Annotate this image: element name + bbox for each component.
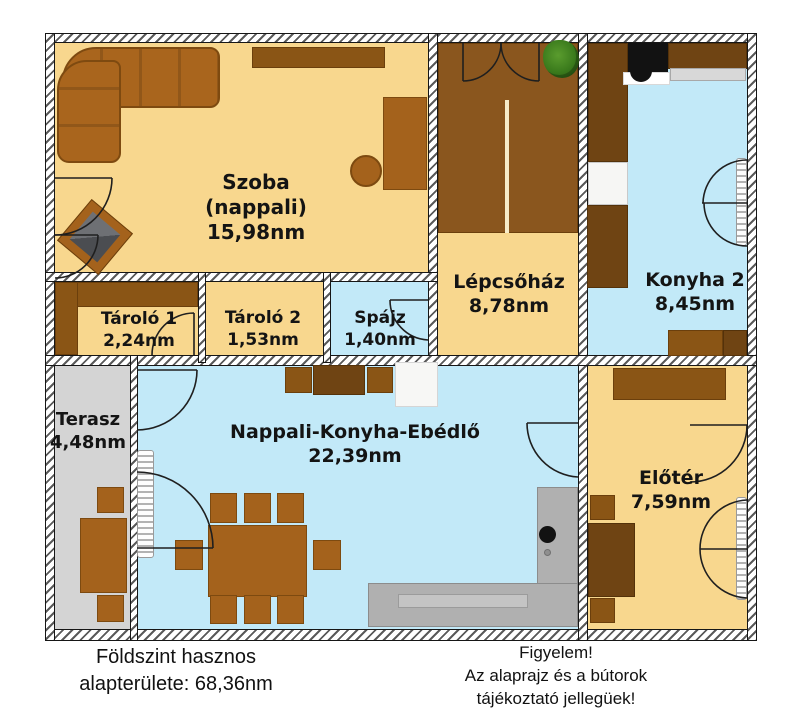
room-area: 1,53nm: [225, 329, 301, 351]
wall-outer-left: [45, 33, 55, 641]
nappali-cabinet2: [313, 365, 365, 395]
wall-tarolo2-spajz: [323, 272, 331, 363]
wall-outer-bottom: [45, 629, 757, 641]
fireplace-inner: [70, 212, 121, 263]
kitchen2-appliance: [588, 162, 628, 205]
kitchen2-counter-strip: [670, 68, 746, 81]
room-name: Lépcsőház: [453, 270, 565, 294]
room-name: Konyha 2: [645, 268, 745, 292]
dining-chair: [244, 595, 271, 624]
room-area: 2,24nm: [101, 330, 177, 352]
wall-outer-top: [45, 33, 757, 43]
desk-chair: [350, 155, 382, 187]
stove-icon: [628, 43, 668, 72]
storage-cabinet-left: [55, 282, 78, 355]
room-subname: (nappali): [205, 195, 307, 220]
footer-disclaimer-line2: Az alaprajz és a bútorok tájékoztató jel…: [434, 664, 678, 710]
sink-icon: [539, 526, 556, 543]
fridge: [395, 362, 438, 407]
dining-chair: [277, 595, 304, 624]
kitchen2-cabinet-bottom1: [668, 330, 723, 356]
room-area: 1,40nm: [344, 329, 416, 351]
room-label-terasz: Terasz 4,48nm: [50, 408, 126, 454]
footer-total-line1: Földszint hasznos: [79, 644, 272, 671]
footer-disclaimer: Figyelem! Az alaprajz és a bútorok tájék…: [434, 641, 678, 710]
kitchen2-cabinet-left-bottom: [587, 205, 628, 288]
footer-total-area: Földszint hasznos alapterülete: 68,36nm: [79, 644, 272, 698]
terrace-chair: [97, 595, 124, 622]
terrace-table: [80, 518, 127, 593]
wall-center-vertical: [578, 33, 588, 641]
room-label-spajz: Spájz 1,40nm: [344, 307, 416, 351]
kitchen2-cabinet-left-top: [588, 43, 628, 162]
room-name: Előtér: [631, 466, 711, 490]
plant-icon: [543, 40, 579, 78]
room-area: 8,45nm: [645, 292, 745, 316]
desk: [383, 97, 427, 190]
wall-outer-right: [747, 33, 757, 641]
terrace-chair: [97, 487, 124, 513]
room-area: 8,78nm: [453, 294, 565, 318]
room-label-eloter: Előtér 7,59nm: [631, 466, 711, 514]
room-label-tarolo2: Tároló 2 1,53nm: [225, 307, 301, 351]
dining-chair: [175, 540, 203, 570]
floor-plan: Szoba (nappali) 15,98nm Lépcsőház 8,78nm…: [0, 0, 800, 711]
footer-disclaimer-line1: Figyelem!: [434, 641, 678, 664]
wall-szoba-tarolo: [45, 272, 438, 282]
dining-table: [208, 525, 307, 597]
kitchen2-cabinet-bottom2: [723, 330, 747, 356]
corner-sofa-side: [57, 60, 121, 163]
room-name: Szoba: [205, 170, 307, 195]
dining-chair: [210, 493, 237, 523]
room-label-konyha2: Konyha 2 8,45nm: [645, 268, 745, 316]
wall-szoba-lepcsohaz: [428, 33, 438, 365]
room-label-szoba: Szoba (nappali) 15,98nm: [205, 170, 307, 245]
room-name: Terasz: [50, 408, 126, 431]
wardrobe: [588, 523, 635, 597]
hob-knob: [544, 549, 551, 556]
dining-chair: [244, 493, 271, 523]
footer-total-line2: alapterülete: 68,36nm: [79, 671, 272, 698]
wall-tarolo1-tarolo2: [198, 272, 206, 363]
eloter-cabinet-top: [613, 368, 726, 400]
room-name: Tároló 2: [225, 307, 301, 329]
dining-chair: [277, 493, 304, 523]
dining-chair: [313, 540, 341, 570]
kitchen2-radiator: [736, 158, 747, 246]
kitchen2-cabinet-top-right: [668, 43, 747, 69]
room-area: 4,48nm: [50, 431, 126, 454]
room-label-lepcsohaz: Lépcsőház 8,78nm: [453, 270, 565, 318]
eloter-radiator: [736, 497, 747, 600]
eloter-shoe-cabinet2: [590, 598, 615, 623]
room-area: 22,39nm: [230, 444, 480, 468]
nappali-radiator: [137, 450, 154, 558]
eloter-shoe-cabinet1: [590, 495, 615, 520]
counter-inner-strip: [398, 594, 528, 608]
dining-chair: [210, 595, 237, 624]
nappali-cabinet3: [367, 367, 393, 393]
room-label-nappali: Nappali-Konyha-Ebédlő 22,39nm: [230, 420, 480, 468]
nappali-cabinet1: [285, 367, 312, 393]
room-area: 15,98nm: [205, 220, 307, 245]
tv-stand: [252, 47, 385, 68]
room-area: 7,59nm: [631, 490, 711, 514]
room-label-tarolo1: Tároló 1 2,24nm: [101, 308, 177, 352]
stair-rail: [505, 100, 509, 233]
room-name: Spájz: [344, 307, 416, 329]
room-name: Nappali-Konyha-Ebédlő: [230, 420, 480, 444]
room-name: Tároló 1: [101, 308, 177, 330]
